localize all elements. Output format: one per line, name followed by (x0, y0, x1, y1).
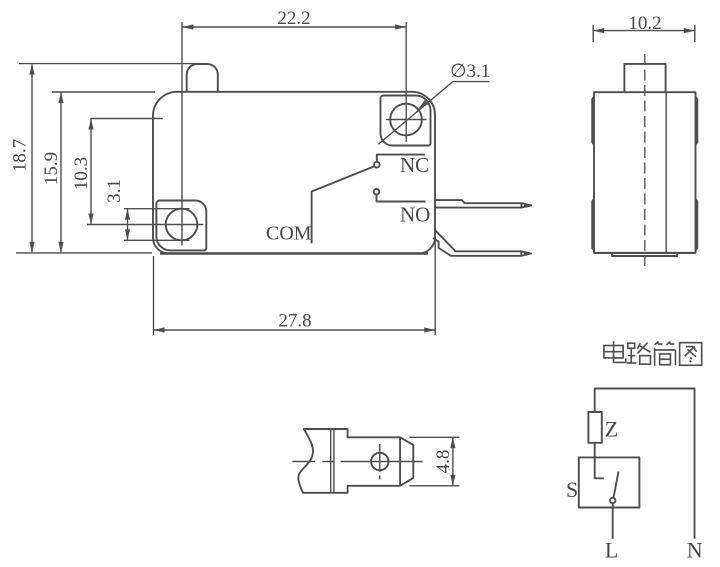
svg-text:4.8: 4.8 (433, 450, 454, 474)
svg-text:15.9: 15.9 (41, 152, 62, 185)
svg-text:Z: Z (605, 417, 618, 442)
svg-text:10.3: 10.3 (71, 157, 92, 190)
svg-text:∅3.1: ∅3.1 (450, 61, 490, 82)
svg-text:NC: NC (400, 153, 429, 177)
svg-text:N: N (687, 538, 703, 563)
svg-text:22.2: 22.2 (277, 8, 310, 29)
svg-text:COM: COM (266, 223, 312, 245)
svg-text:3.1: 3.1 (104, 179, 125, 203)
svg-text:18.7: 18.7 (10, 139, 31, 172)
svg-text:L: L (605, 538, 618, 563)
svg-text:S: S (566, 477, 578, 502)
svg-text:10.2: 10.2 (628, 13, 661, 34)
svg-text:NO: NO (400, 203, 430, 227)
svg-text:27.8: 27.8 (278, 311, 311, 332)
